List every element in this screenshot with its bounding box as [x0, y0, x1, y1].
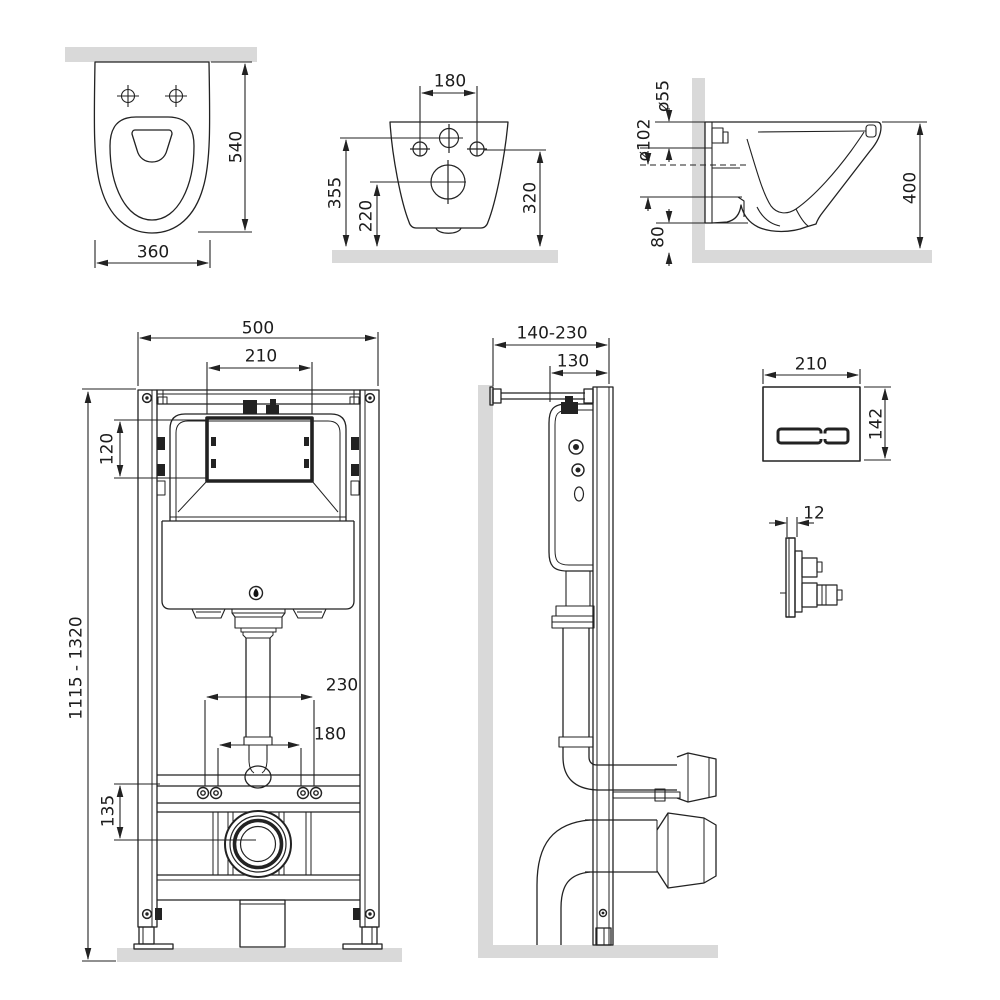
drawing-linework — [0, 0, 1000, 1000]
dim-window-height: 120 — [100, 433, 117, 465]
stud-bolt-holes — [198, 788, 322, 799]
profile-details — [712, 122, 876, 226]
dim-plate-width: 210 — [795, 357, 827, 374]
flush-plate-side-view — [769, 517, 842, 617]
concealed-cistern — [157, 399, 359, 618]
waste-drain-elbow — [537, 813, 716, 945]
dim-toilet-depth: 540 — [229, 131, 246, 163]
flush-button-large — [778, 429, 821, 443]
dim-toilet-width: 360 — [137, 245, 169, 262]
connection-holes — [410, 124, 487, 204]
flush-plate — [763, 387, 860, 461]
dim-height-side: 320 — [523, 182, 540, 214]
dim-plate-height: 142 — [869, 408, 886, 440]
flush-bend-pipe — [552, 571, 716, 802]
dim-plate-thickness: 12 — [803, 506, 825, 523]
dim-depth-range: 140-230 — [516, 326, 587, 343]
dim-frame-width: 500 — [242, 321, 274, 338]
filling-valve-connector — [243, 400, 257, 414]
dim-frame-depth: 130 — [557, 354, 589, 371]
toilet-bowl-outline — [94, 62, 209, 233]
dim-outlet-diameter: ø102 — [637, 119, 654, 162]
dimension-lines — [82, 332, 378, 961]
frame-front-view — [82, 332, 402, 962]
frame-column — [593, 387, 613, 945]
toilet-rear-view — [332, 86, 558, 263]
waste-outlet — [225, 811, 291, 947]
dim-spacing-inner: 180 — [314, 727, 346, 744]
floor-section — [692, 250, 932, 263]
floor-section — [332, 250, 558, 263]
dim-bottom-gap: 80 — [651, 226, 668, 248]
flush-opening — [132, 130, 172, 162]
toilet-profile-outline — [705, 122, 881, 232]
dim-spacing-outer: 230 — [326, 678, 358, 695]
dimension-lines — [95, 62, 252, 268]
dim-frame-height-range: 1115 - 1320 — [69, 616, 86, 719]
floor-section — [117, 948, 402, 962]
wall-section — [478, 385, 493, 958]
frame-side-view — [478, 338, 718, 958]
wall-section — [65, 47, 257, 62]
cistern-profile — [549, 396, 593, 571]
seat-outline — [110, 117, 194, 220]
flush-pipe — [232, 609, 285, 788]
technical-drawing-canvas: 540 360 180 355 220 320 ø55 ø102 80 400 … — [0, 0, 1000, 1000]
dim-toilet-height: 400 — [903, 172, 920, 204]
dim-height-outlet: 220 — [359, 200, 376, 232]
toilet-side-view — [640, 78, 932, 266]
trap-bump — [436, 228, 461, 233]
adjustable-feet — [134, 927, 382, 949]
dim-window-width: 210 — [245, 349, 277, 366]
flush-button-small — [825, 429, 848, 443]
plate-profile — [786, 538, 795, 617]
dim-drain-offset: 135 — [101, 795, 118, 827]
mounting-crosshairs — [117, 85, 187, 107]
floor-section — [480, 945, 718, 958]
dim-hole-spacing: 180 — [434, 74, 466, 91]
dim-height-top: 355 — [328, 177, 345, 209]
access-window — [207, 418, 312, 481]
dim-inlet-diameter: ø55 — [656, 80, 673, 112]
